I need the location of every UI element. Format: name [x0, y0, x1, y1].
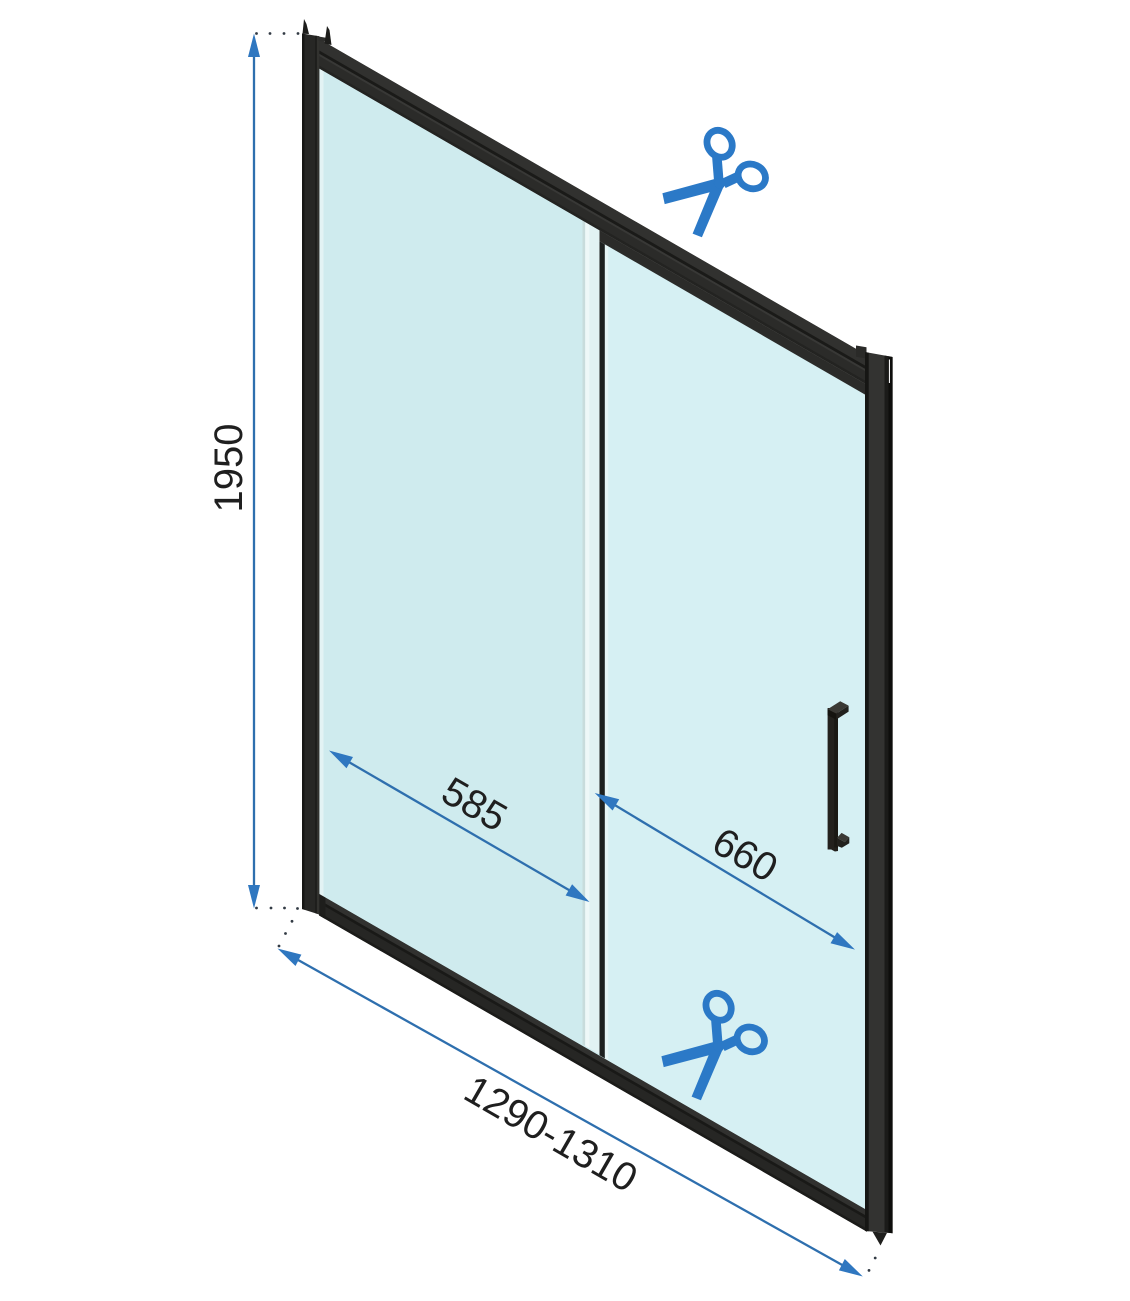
- svg-text:1950: 1950: [207, 424, 251, 513]
